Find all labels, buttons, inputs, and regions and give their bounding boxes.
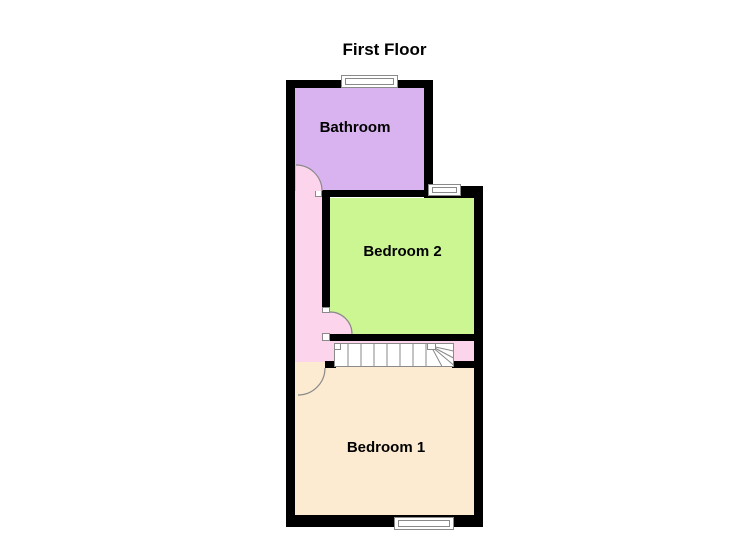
wall-bedroom2-left — [322, 190, 330, 307]
wall-outer-left — [286, 80, 295, 527]
plan-title: First Floor — [286, 40, 483, 60]
door-jamb — [315, 190, 322, 197]
stair-newel-post — [335, 344, 341, 350]
room-label-bedroom1: Bedroom 1 — [295, 439, 477, 456]
door-arc-bedroom2 — [330, 312, 352, 334]
door-jamb — [322, 333, 330, 341]
staircase — [334, 343, 454, 367]
wall-bathroom-bottom — [322, 190, 433, 197]
wall-bedroom2-bottom — [322, 334, 475, 341]
room-label-bathroom: Bathroom — [295, 119, 415, 136]
wall-bedroom1-top-right — [452, 361, 475, 368]
window-glass — [398, 520, 450, 527]
window-bedroom2 — [428, 184, 461, 196]
window-glass — [345, 78, 394, 85]
floor-plan: First Floor — [0, 0, 750, 545]
hallway-strip — [295, 191, 322, 362]
wall-bathroom-right — [424, 80, 433, 198]
door-arc-bathroom — [296, 165, 322, 191]
wall-outer-right — [474, 186, 483, 527]
door-opening-bedroom2 — [322, 313, 330, 333]
window-glass — [432, 187, 457, 193]
stair-winder-pivot — [428, 344, 436, 350]
room-label-bedroom2: Bedroom 2 — [330, 243, 475, 260]
door-arc-bedroom1 — [298, 368, 325, 395]
window-bedroom1 — [394, 517, 454, 530]
window-bathroom — [341, 75, 398, 88]
